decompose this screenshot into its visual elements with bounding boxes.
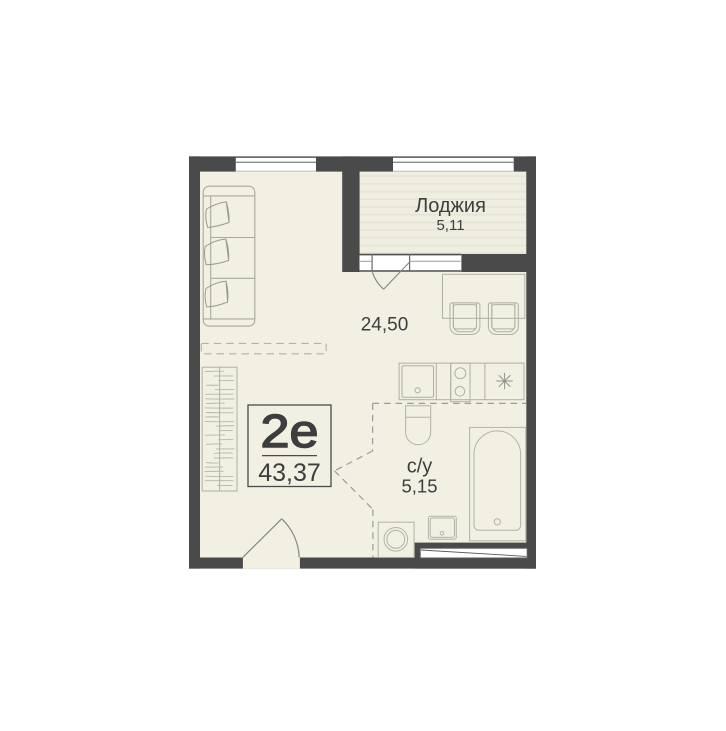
svg-text:43,37: 43,37: [258, 459, 321, 487]
svg-text:5,11: 5,11: [436, 217, 464, 234]
svg-text:5,15: 5,15: [401, 476, 437, 497]
svg-text:2e: 2e: [261, 405, 319, 457]
svg-text:с/у: с/у: [407, 456, 433, 478]
svg-text:Лоджия: Лоджия: [415, 195, 486, 217]
svg-text:24,50: 24,50: [361, 315, 409, 336]
